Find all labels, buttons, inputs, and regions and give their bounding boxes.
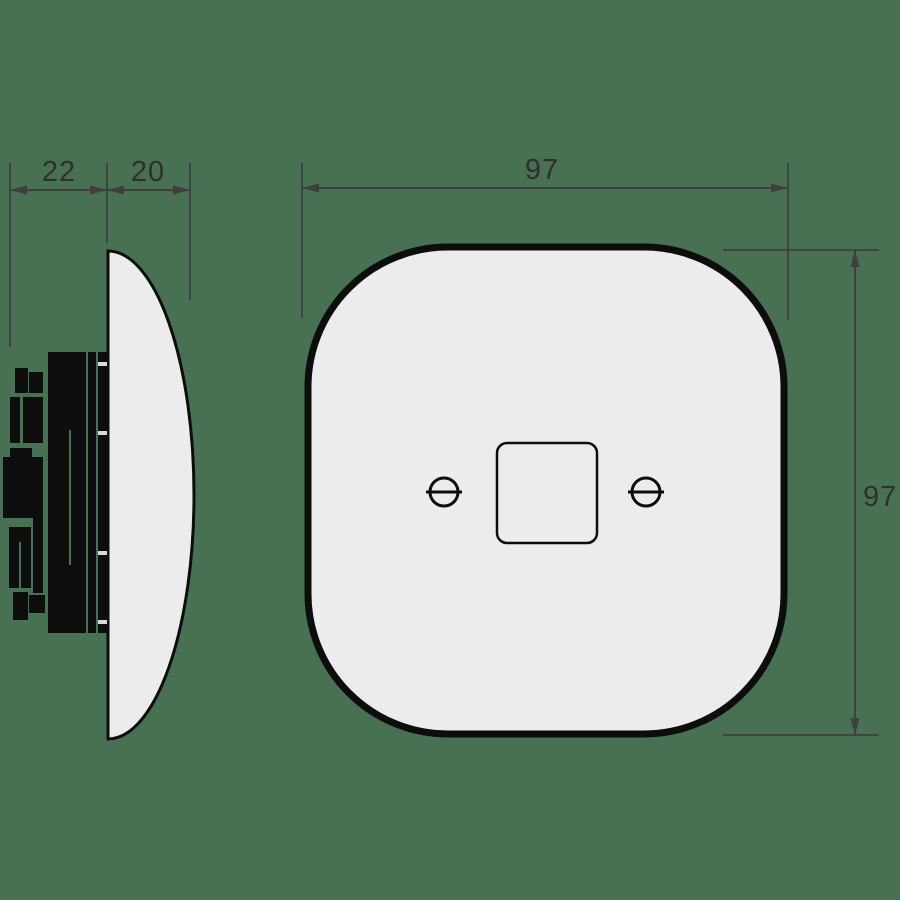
mechanism-part: [23, 397, 43, 443]
mechanism-part: [13, 592, 28, 620]
mechanism-seam: [69, 430, 71, 565]
mechanism-part: [33, 518, 43, 593]
mechanism-part: [29, 595, 45, 613]
front-view: [308, 247, 784, 734]
mechanism-part: [48, 352, 107, 633]
mechanism-part: [21, 542, 31, 588]
dimension-label-plate-height: 97: [863, 481, 897, 513]
mechanism-notch: [98, 431, 107, 435]
mechanism-part: [9, 542, 19, 588]
mechanism-notch: [98, 362, 107, 366]
mechanism-part: [29, 372, 43, 393]
center-opening: [497, 443, 597, 543]
mechanism-part: [3, 457, 43, 518]
mechanism-part: [9, 527, 31, 542]
mechanism-part: [10, 397, 20, 443]
dimension-label-plate-width: 97: [525, 154, 559, 186]
mechanism-part: [15, 368, 28, 393]
drawing-canvas: 22 20 97 97: [0, 0, 900, 900]
dimension-label-rear-depth: 22: [42, 156, 76, 188]
mechanism-seam: [86, 352, 88, 633]
mechanism-seam: [96, 352, 98, 633]
dimension-label-cover-depth: 20: [131, 156, 165, 188]
technical-drawing-page: 22 20 97 97: [0, 0, 900, 900]
mechanism-notch: [98, 620, 107, 624]
mechanism-notch: [98, 551, 107, 555]
